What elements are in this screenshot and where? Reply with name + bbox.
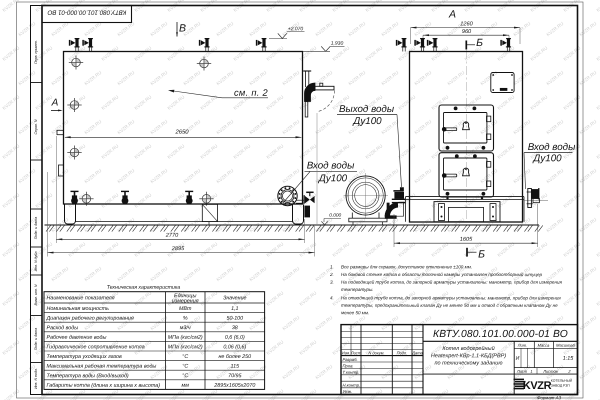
svg-text:Инв. N подл.: Инв. N подл. [34,368,38,389]
svg-text:Heatexpert-КВр-1,1-КБД(РВР): Heatexpert-КВр-1,1-КБД(РВР) [431,353,506,359]
svg-text:Лист: Лист [350,350,362,355]
svg-text:Лист: Лист [516,369,528,374]
svg-text:В: В [179,22,186,34]
svg-text:менее 50 мм.: менее 50 мм. [341,310,369,315]
svg-text:Масштаб: Масштаб [556,343,575,348]
svg-text:Выход воды: Выход воды [339,104,395,115]
svg-text:1260: 1260 [460,21,473,27]
svg-text:0,06 (0,6): 0,06 (0,6) [223,344,246,350]
svg-text:Т.контр.: Т.контр. [342,370,359,375]
svg-text:измерения: измерения [172,298,199,304]
svg-text:Взам. инв. N: Взам. инв. N [34,284,38,305]
svg-text:°С: °С [182,373,188,379]
svg-text:Котел водогрейный: Котел водогрейный [442,345,494,352]
svg-text:мм: мм [182,383,190,389]
svg-text:Гидравлическое сопротивление к: Гидравлическое сопротивление котла [46,344,144,350]
svg-text:А: А [51,97,59,108]
svg-text:2650: 2650 [174,130,189,136]
svg-text:КОТЕЛЬНЫЙ: КОТЕЛЬНЫЙ [551,379,573,383]
svg-text:1:15: 1:15 [563,356,574,362]
svg-text:1.: 1. [330,264,334,269]
svg-text:На отводящей трубе котла, до з: На отводящей трубе котла, до запорной ар… [341,294,561,300]
svg-text:Наименование показателя: Наименование показателя [46,295,114,301]
svg-text:2895х1605х2070: 2895х1605х2070 [213,383,255,389]
svg-text:температуры.: температуры. [341,287,374,292]
svg-text:На боковой стенке котла в обла: На боковой стенке котла в области топочн… [341,271,542,277]
svg-text:960: 960 [462,29,472,35]
svg-text:0,6 (6,0): 0,6 (6,0) [225,335,245,341]
svg-text:2895: 2895 [171,246,185,252]
svg-text:не более 250: не более 250 [218,354,251,360]
svg-text:ЗАВОД РЗП: ЗАВОД РЗП [551,384,570,388]
svg-text:50-100: 50-100 [226,316,243,322]
svg-text:Изм.: Изм. [342,350,351,355]
svg-text:Подп. и дата: Подп. и дата [34,217,38,240]
svg-text:Вход воды: Вход воды [528,142,576,153]
svg-text:70/95: 70/95 [228,373,241,379]
svg-text:Температура уходящих газов: Температура уходящих газов [46,354,122,360]
svg-text:МВт: МВт [179,306,192,312]
svg-text:1605: 1605 [460,237,473,243]
svg-text:115: 115 [231,364,240,370]
svg-text:38: 38 [232,325,238,331]
svg-text:3.: 3. [330,280,334,285]
svg-text:Справ. N: Справ. N [34,119,38,134]
svg-text:Лит.: Лит. [517,343,527,348]
svg-text:КВТУ.080.101.00.000-01 ВО: КВТУ.080.101.00.000-01 ВО [433,329,568,340]
svg-text:2.: 2. [329,272,334,277]
svg-text:Б: Б [476,37,483,49]
svg-text:Максимальная рабочая температу: Максимальная рабочая температура воды [46,364,156,370]
svg-text:МПа (кгс/см2): МПа (кгс/см2) [168,335,203,341]
svg-text:Разраб.: Разраб. [342,357,357,362]
svg-text:Все размеры для справок, допус: Все размеры для справок, допустимое откл… [341,264,472,269]
svg-text:Подп. и дата: Подп. и дата [34,328,38,351]
svg-text:Вход воды: Вход воды [307,160,355,171]
svg-text:N докум.: N докум. [368,350,384,355]
svg-text:Ду100: Ду100 [352,116,382,127]
svg-text:Ду100: Ду100 [318,173,348,184]
svg-text:На подводящей трубе котла, д: На подводящей трубе котла, до запорной а… [341,279,562,285]
svg-text:Дата: Дата [411,350,423,355]
svg-text:Перв. примен.: Перв. примен. [34,40,38,64]
svg-text:Значение: Значение [223,295,246,301]
svg-text:Ду100: Ду100 [532,153,562,164]
svg-text:KVZR: KVZR [523,380,552,392]
svg-text:И: И [516,356,520,362]
svg-text:по техническому заданию: по техническому заданию [435,360,503,366]
svg-text:0.000: 0.000 [329,213,341,219]
svg-text:Техническая характеристика: Техническая характеристика [107,285,181,291]
svg-text:Подп.: Подп. [397,350,408,355]
svg-text:см. п. 2: см. п. 2 [234,88,269,98]
svg-text:Рабочее давление воды: Рабочее давление воды [46,335,106,341]
svg-text:Габариты котла (длина х ширина: Габариты котла (длина х ширина х высота) [46,383,160,389]
svg-text:1,1: 1,1 [231,306,238,312]
svg-text:°С: °С [182,364,188,370]
svg-text:КВТУ.080.101.00.000-01 ВО: КВТУ.080.101.00.000-01 ВО [47,8,126,15]
svg-text:4.: 4. [330,295,334,300]
svg-text:2770: 2770 [165,233,179,239]
svg-text:Листов: Листов [542,369,558,374]
svg-text:температуры, предохранительный: температуры, предохранительный клапан Ду… [341,302,558,308]
svg-text:Масса: Масса [538,343,551,348]
svg-text:Номинальная мощность: Номинальная мощность [46,306,109,312]
svg-text:Пров.: Пров. [342,363,353,368]
svg-text:А: А [448,8,456,20]
svg-text:Утв.: Утв. [342,389,352,394]
svg-text:Расход воды: Расход воды [46,325,78,331]
svg-text:Температура воды (Вход/выход): Температура воды (Вход/выход) [46,373,128,379]
svg-text:МПа (кгс/см2): МПа (кгс/см2) [168,344,203,350]
svg-text:Диапазон рабочего регулировани: Диапазон рабочего регулирования [45,316,133,322]
svg-text:%: % [183,316,188,322]
svg-text:+2,070: +2,070 [288,26,304,32]
svg-text:1,930: 1,930 [331,41,344,47]
svg-text:°С: °С [182,354,188,360]
svg-text:м3/ч: м3/ч [180,325,191,331]
svg-text:Формат А3: Формат А3 [537,395,562,400]
svg-text:Н.контр.: Н.контр. [342,383,360,388]
svg-text:1: 1 [530,369,532,374]
svg-text:Инв. N дубл.: Инв. N дубл. [34,251,38,272]
svg-text:Б: Б [478,248,485,260]
